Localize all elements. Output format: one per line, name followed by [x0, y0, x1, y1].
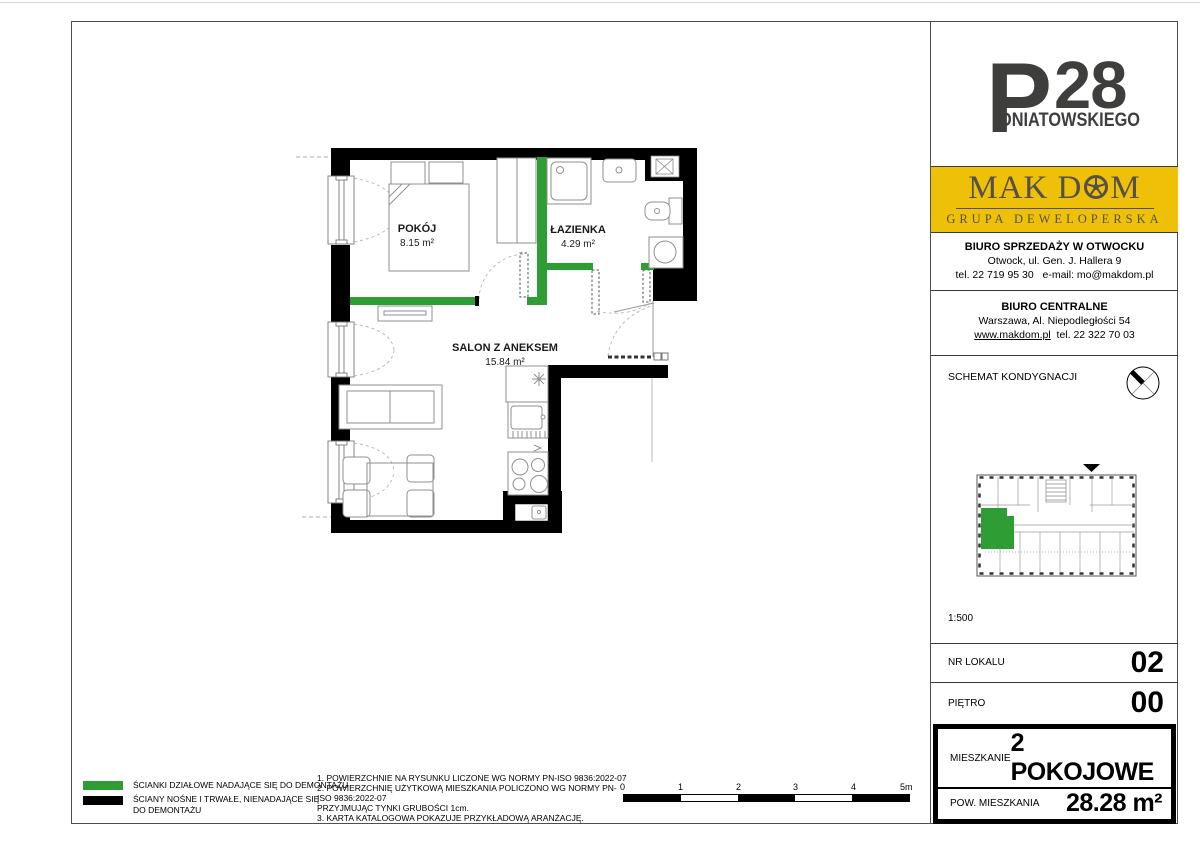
- section-divider: [931, 290, 1178, 291]
- shower: [547, 158, 591, 204]
- logo-letter-p: P: [986, 48, 1050, 147]
- toilet: [645, 198, 682, 224]
- note-2b: PRZYJMUJĄC TYNKI GRUBOŚCI 1cm.: [317, 803, 627, 813]
- apartment-type-value: 2 POKOJOWE: [1011, 729, 1162, 787]
- room-labels: POKÓJ 8.15 m² ŁAZIENKA 4.29 m² SALON Z A…: [398, 222, 606, 368]
- room-name-pokoj: POKÓJ: [398, 222, 437, 235]
- floor-schematic-svg: [935, 358, 1175, 640]
- developer-banner: MAK D M GRUPA DEWELOPERSKA: [931, 166, 1178, 233]
- room-name-salon: SALON Z ANEKSEM: [452, 342, 558, 354]
- door-frame-mark-1: [654, 353, 661, 360]
- unit-number-label: NR LOKALU: [948, 657, 1005, 668]
- room-area-pokoj: 8.15 m²: [400, 238, 435, 249]
- floor-value: 00: [1131, 686, 1164, 720]
- legend-structural-text: ŚCIANY NOŚNE I TRWAŁE, NIENADAJĄCE SIĘ D…: [133, 794, 319, 815]
- central-office-block: BIURO CENTRALNE Warszawa, Al. Niepodległ…: [931, 300, 1178, 342]
- note-2: 2. POWIERZCHNIĘ UŻYTKOWĄ MIESZKANIA POLI…: [317, 783, 627, 803]
- apartment-area-value: 28.28 m²: [1066, 789, 1162, 818]
- central-office-address: Warszawa, Al. Niepodległości 54: [931, 314, 1178, 328]
- sales-office-contact: tel. 22 719 95 30 e-mail: mo@makdom.pl: [931, 268, 1178, 282]
- room-name-lazienka: ŁAZIENKA: [550, 224, 606, 236]
- window-left-1: [328, 176, 354, 244]
- legend-structural-line1: ŚCIANY NOŚNE I TRWAŁE, NIENADAJĄCE SIĘ: [133, 794, 319, 805]
- sideboard: [378, 306, 432, 321]
- shaft-niche-top: [651, 156, 679, 177]
- legend-structural-line2: DO DEMONTAŻU: [133, 805, 319, 816]
- floor-label: PIĘTRO: [948, 698, 985, 709]
- floor-plan-svg: POKÓJ 8.15 m² ŁAZIENKA 4.29 m² SALON Z A…: [280, 130, 750, 580]
- dining-set: [343, 455, 434, 517]
- scale-segment: [795, 795, 852, 801]
- washing-machine: [649, 237, 683, 268]
- building-plan: [977, 464, 1136, 576]
- central-office-contact: www.makdom.pl tel. 22 322 70 03: [931, 328, 1178, 342]
- scale-bar: [623, 794, 910, 802]
- legend-swatch-structural: [83, 796, 123, 805]
- fridge: [506, 366, 548, 402]
- apartment-area-row: POW. MIESZKANIA 28.28 m²: [938, 789, 1171, 820]
- scalebar-label-2: 2: [736, 782, 741, 792]
- schematic-scale: 1:500: [948, 613, 973, 624]
- apartment-type-row: MIESZKANIE 2 POKOJOWE: [938, 729, 1171, 787]
- scalebar-label-0: 0: [620, 782, 625, 792]
- central-office-title: BIURO CENTRALNE: [931, 300, 1178, 314]
- sales-office-phone: tel. 22 719 95 30: [955, 269, 1033, 281]
- unit-number-row: NR LOKALU 02: [931, 643, 1178, 682]
- apartment-summary-box: MIESZKANIE 2 POKOJOWE POW. MIESZKANIA 28…: [933, 724, 1176, 824]
- kitchen-sink: [508, 402, 548, 451]
- bed: [389, 162, 469, 271]
- developer-name: MAK D M: [968, 172, 1140, 205]
- brand-rule: [956, 208, 1154, 210]
- sofa: [339, 385, 442, 429]
- developer-tagline: GRUPA DEWELOPERSKA: [946, 212, 1162, 227]
- stove: [508, 452, 548, 495]
- section-divider: [931, 355, 1178, 356]
- central-office-phone: tel. 22 322 70 03: [1057, 329, 1135, 341]
- scale-segment: [738, 795, 795, 801]
- wheel-o-icon: [1083, 174, 1109, 200]
- shaft-niche-bottom: [515, 504, 548, 521]
- top-hairline: [0, 2, 1200, 3]
- sales-office-block: BIURO SPRZEDAŻY W OTWOCKU Otwock, ul. Ge…: [931, 240, 1178, 282]
- wardrobe: [497, 158, 536, 243]
- scalebar-label-5: 5m: [900, 782, 913, 792]
- floor-row: PIĘTRO 00: [931, 682, 1178, 724]
- sales-office-title: BIURO SPRZEDAŻY W OTWOCKU: [931, 240, 1178, 254]
- door-jamb: [475, 296, 479, 306]
- staircase: [1046, 480, 1066, 502]
- scalebar-label-4: 4: [851, 782, 856, 792]
- room-area-salon: 15.84 m²: [485, 357, 525, 368]
- sales-office-address: Otwock, ul. Gen. J. Hallera 9: [931, 254, 1178, 268]
- apartment-type-label: MIESZKANIE: [950, 753, 1011, 764]
- note-3: 3. KARTA KATALOGOWA POKAZUJE PRZYKŁADOWĄ…: [317, 813, 627, 823]
- floor-plan-card: POKÓJ 8.15 m² ŁAZIENKA 4.29 m² SALON Z A…: [0, 0, 1200, 848]
- logo-number: 28: [1054, 52, 1127, 119]
- unit-number-value: 02: [1131, 646, 1164, 680]
- legend-partition-text: ŚCIANKI DZIAŁOWE NADAJĄCE SIĘ DO DEMONTA…: [133, 780, 348, 791]
- apartment-area-label: POW. MIESZKANIA: [950, 798, 1039, 809]
- website-link[interactable]: www.makdom.pl: [974, 329, 1050, 341]
- legend-swatch-partition: [83, 781, 123, 790]
- sales-office-email: e-mail: mo@makdom.pl: [1042, 269, 1153, 281]
- note-1: 1. POWIERZCHNIE NA RYSUNKU LICZONE WG NO…: [317, 773, 627, 783]
- scalebar-label-1: 1: [678, 782, 683, 792]
- brand-text-left: MAK D: [968, 172, 1082, 205]
- door-frame-mark-2: [662, 353, 668, 360]
- brand-text-right: M: [1110, 172, 1140, 205]
- scalebar-label-3: 3: [793, 782, 798, 792]
- window-left-2: [328, 322, 354, 377]
- logo-subtitle: ONIATOWSKIEGO: [999, 110, 1140, 132]
- location-pointer: [1083, 464, 1100, 472]
- notes-block: 1. POWIERZCHNIE NA RYSUNKU LICZONE WG NO…: [317, 773, 627, 823]
- scale-segment: [681, 795, 738, 801]
- north-compass-icon: [1127, 367, 1159, 399]
- scale-segment: [852, 795, 909, 801]
- scale-segment: [624, 795, 681, 801]
- washbasin: [603, 159, 636, 182]
- room-area-lazienka: 4.29 m²: [561, 239, 596, 250]
